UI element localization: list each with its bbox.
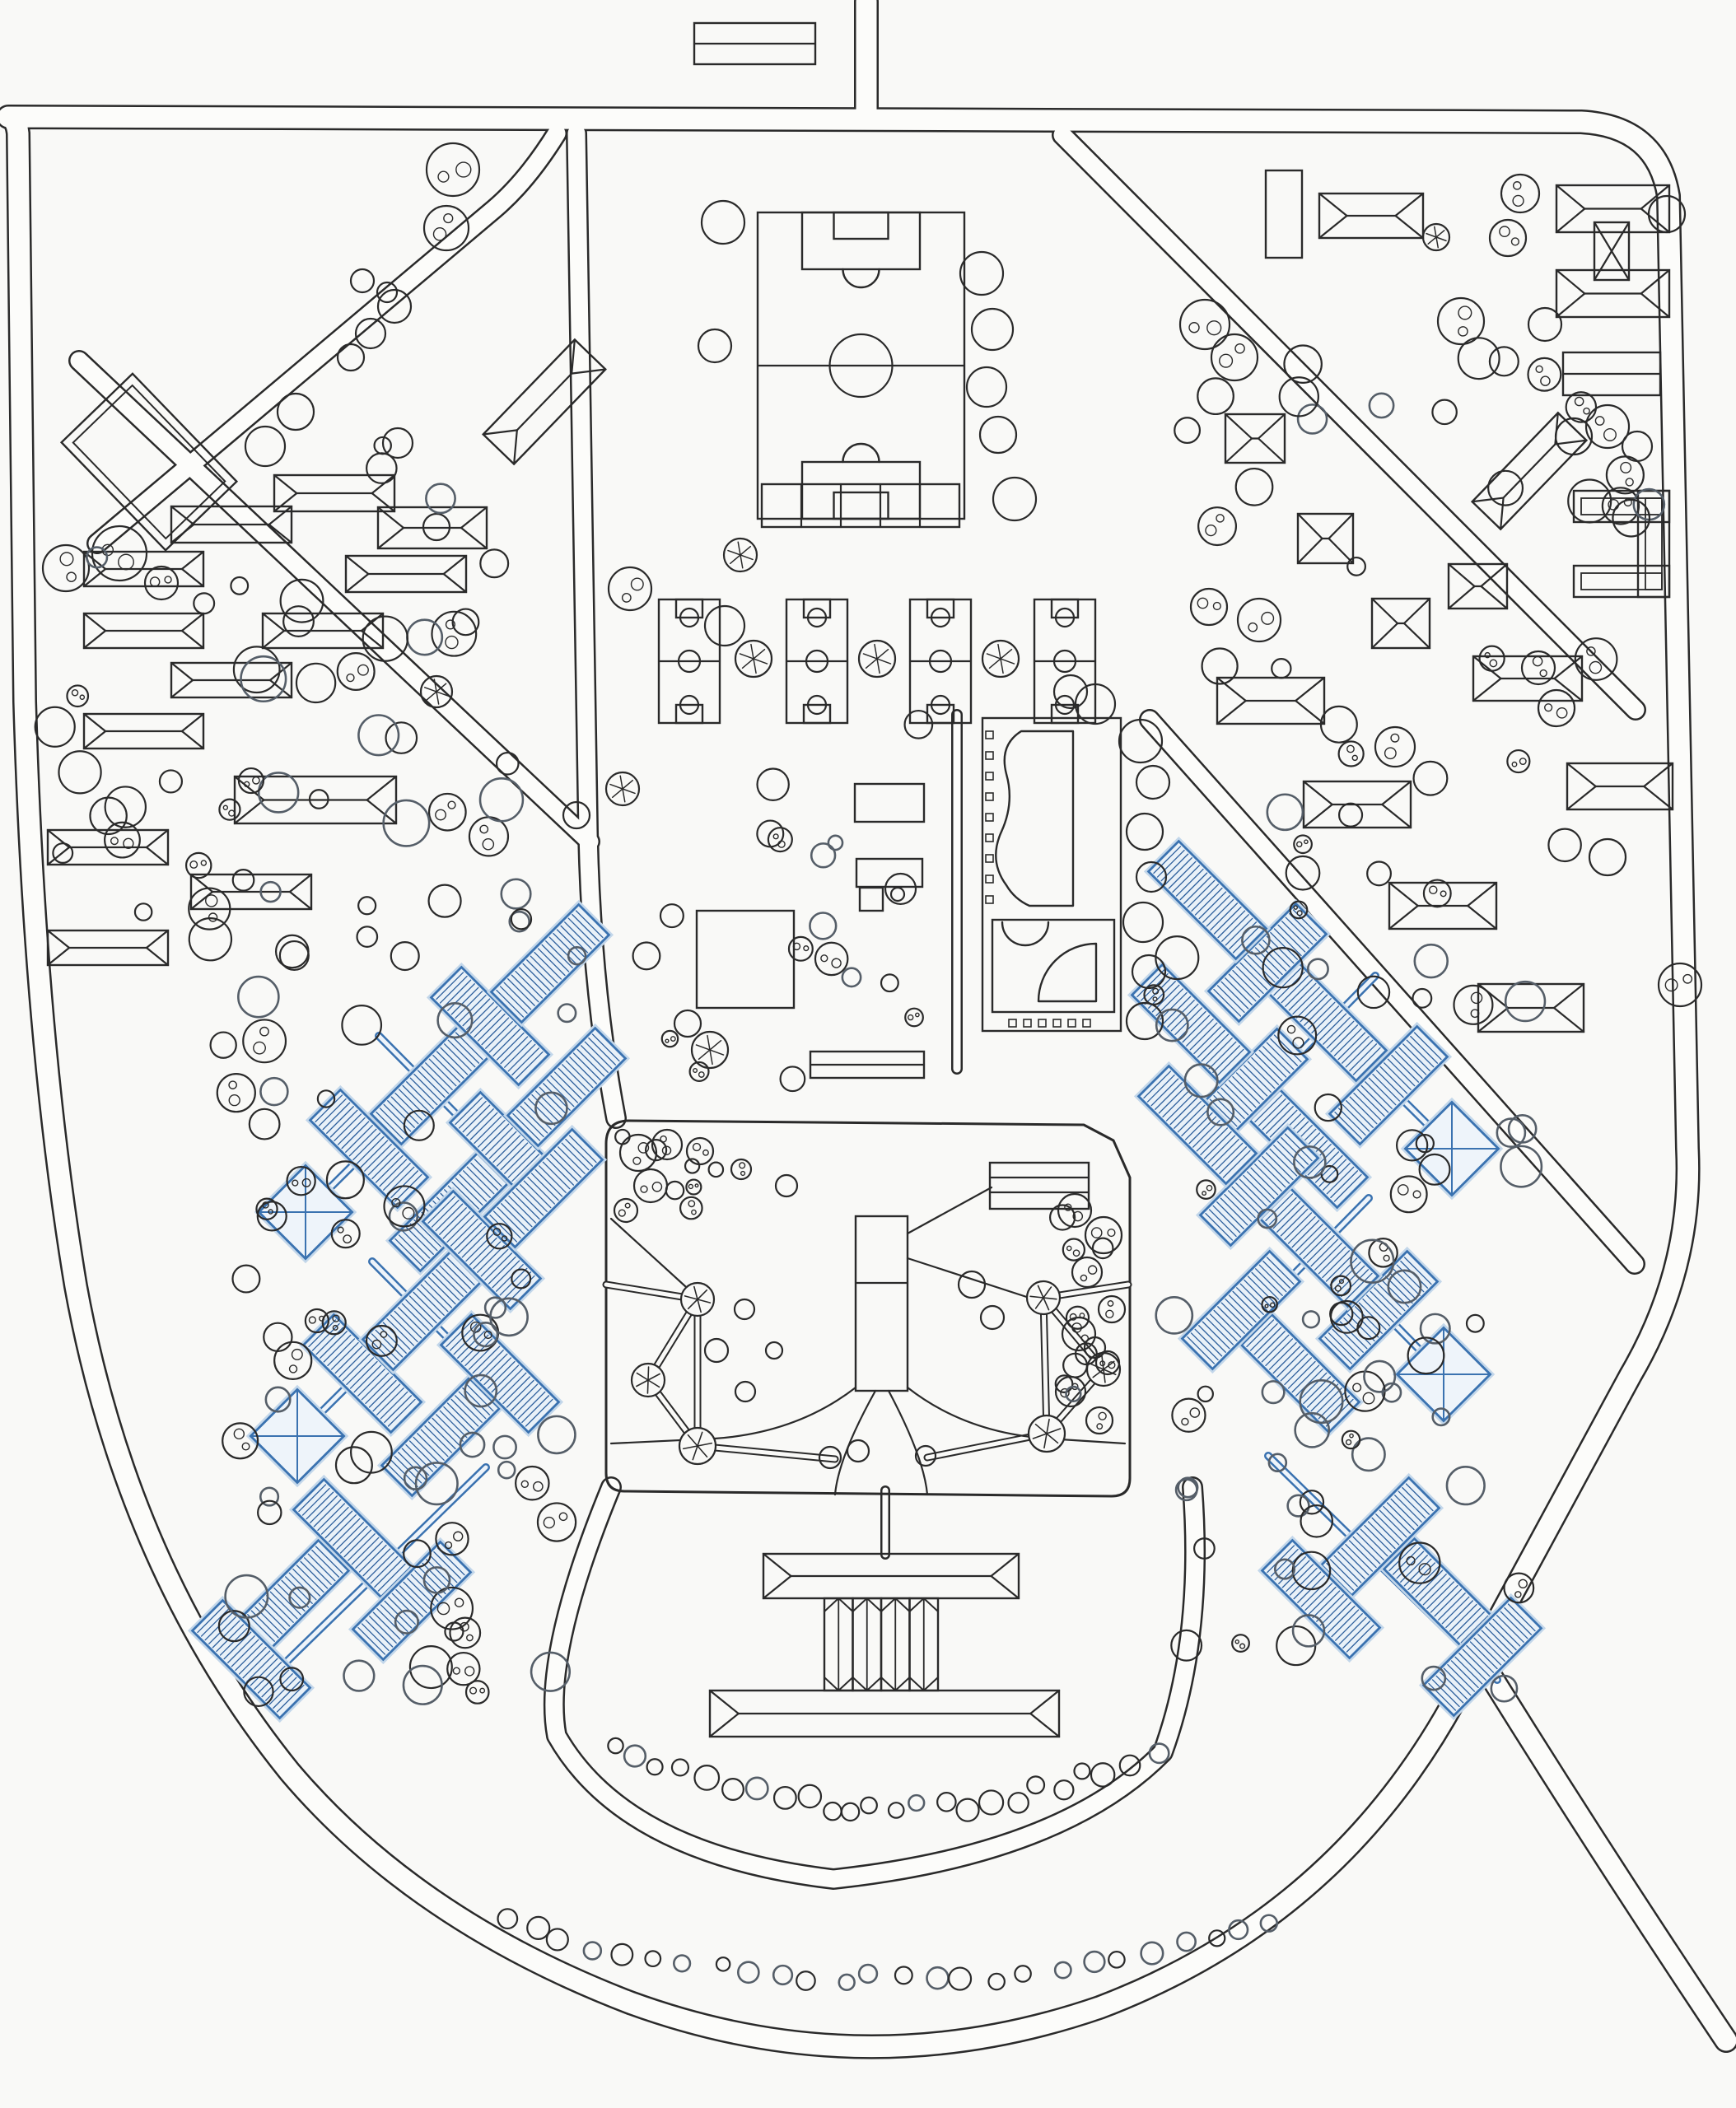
plaza-node — [679, 1428, 716, 1464]
plaza-node — [1027, 1281, 1060, 1314]
edge-line — [648, 1367, 649, 1380]
campus-site-plan-svg — [0, 0, 1736, 2108]
plaza-node — [632, 1364, 665, 1397]
edge-line — [647, 1380, 648, 1393]
plaza-node — [1029, 1415, 1065, 1452]
plaza-node — [681, 1283, 714, 1316]
campus-site-plan-page — [0, 0, 1736, 2108]
